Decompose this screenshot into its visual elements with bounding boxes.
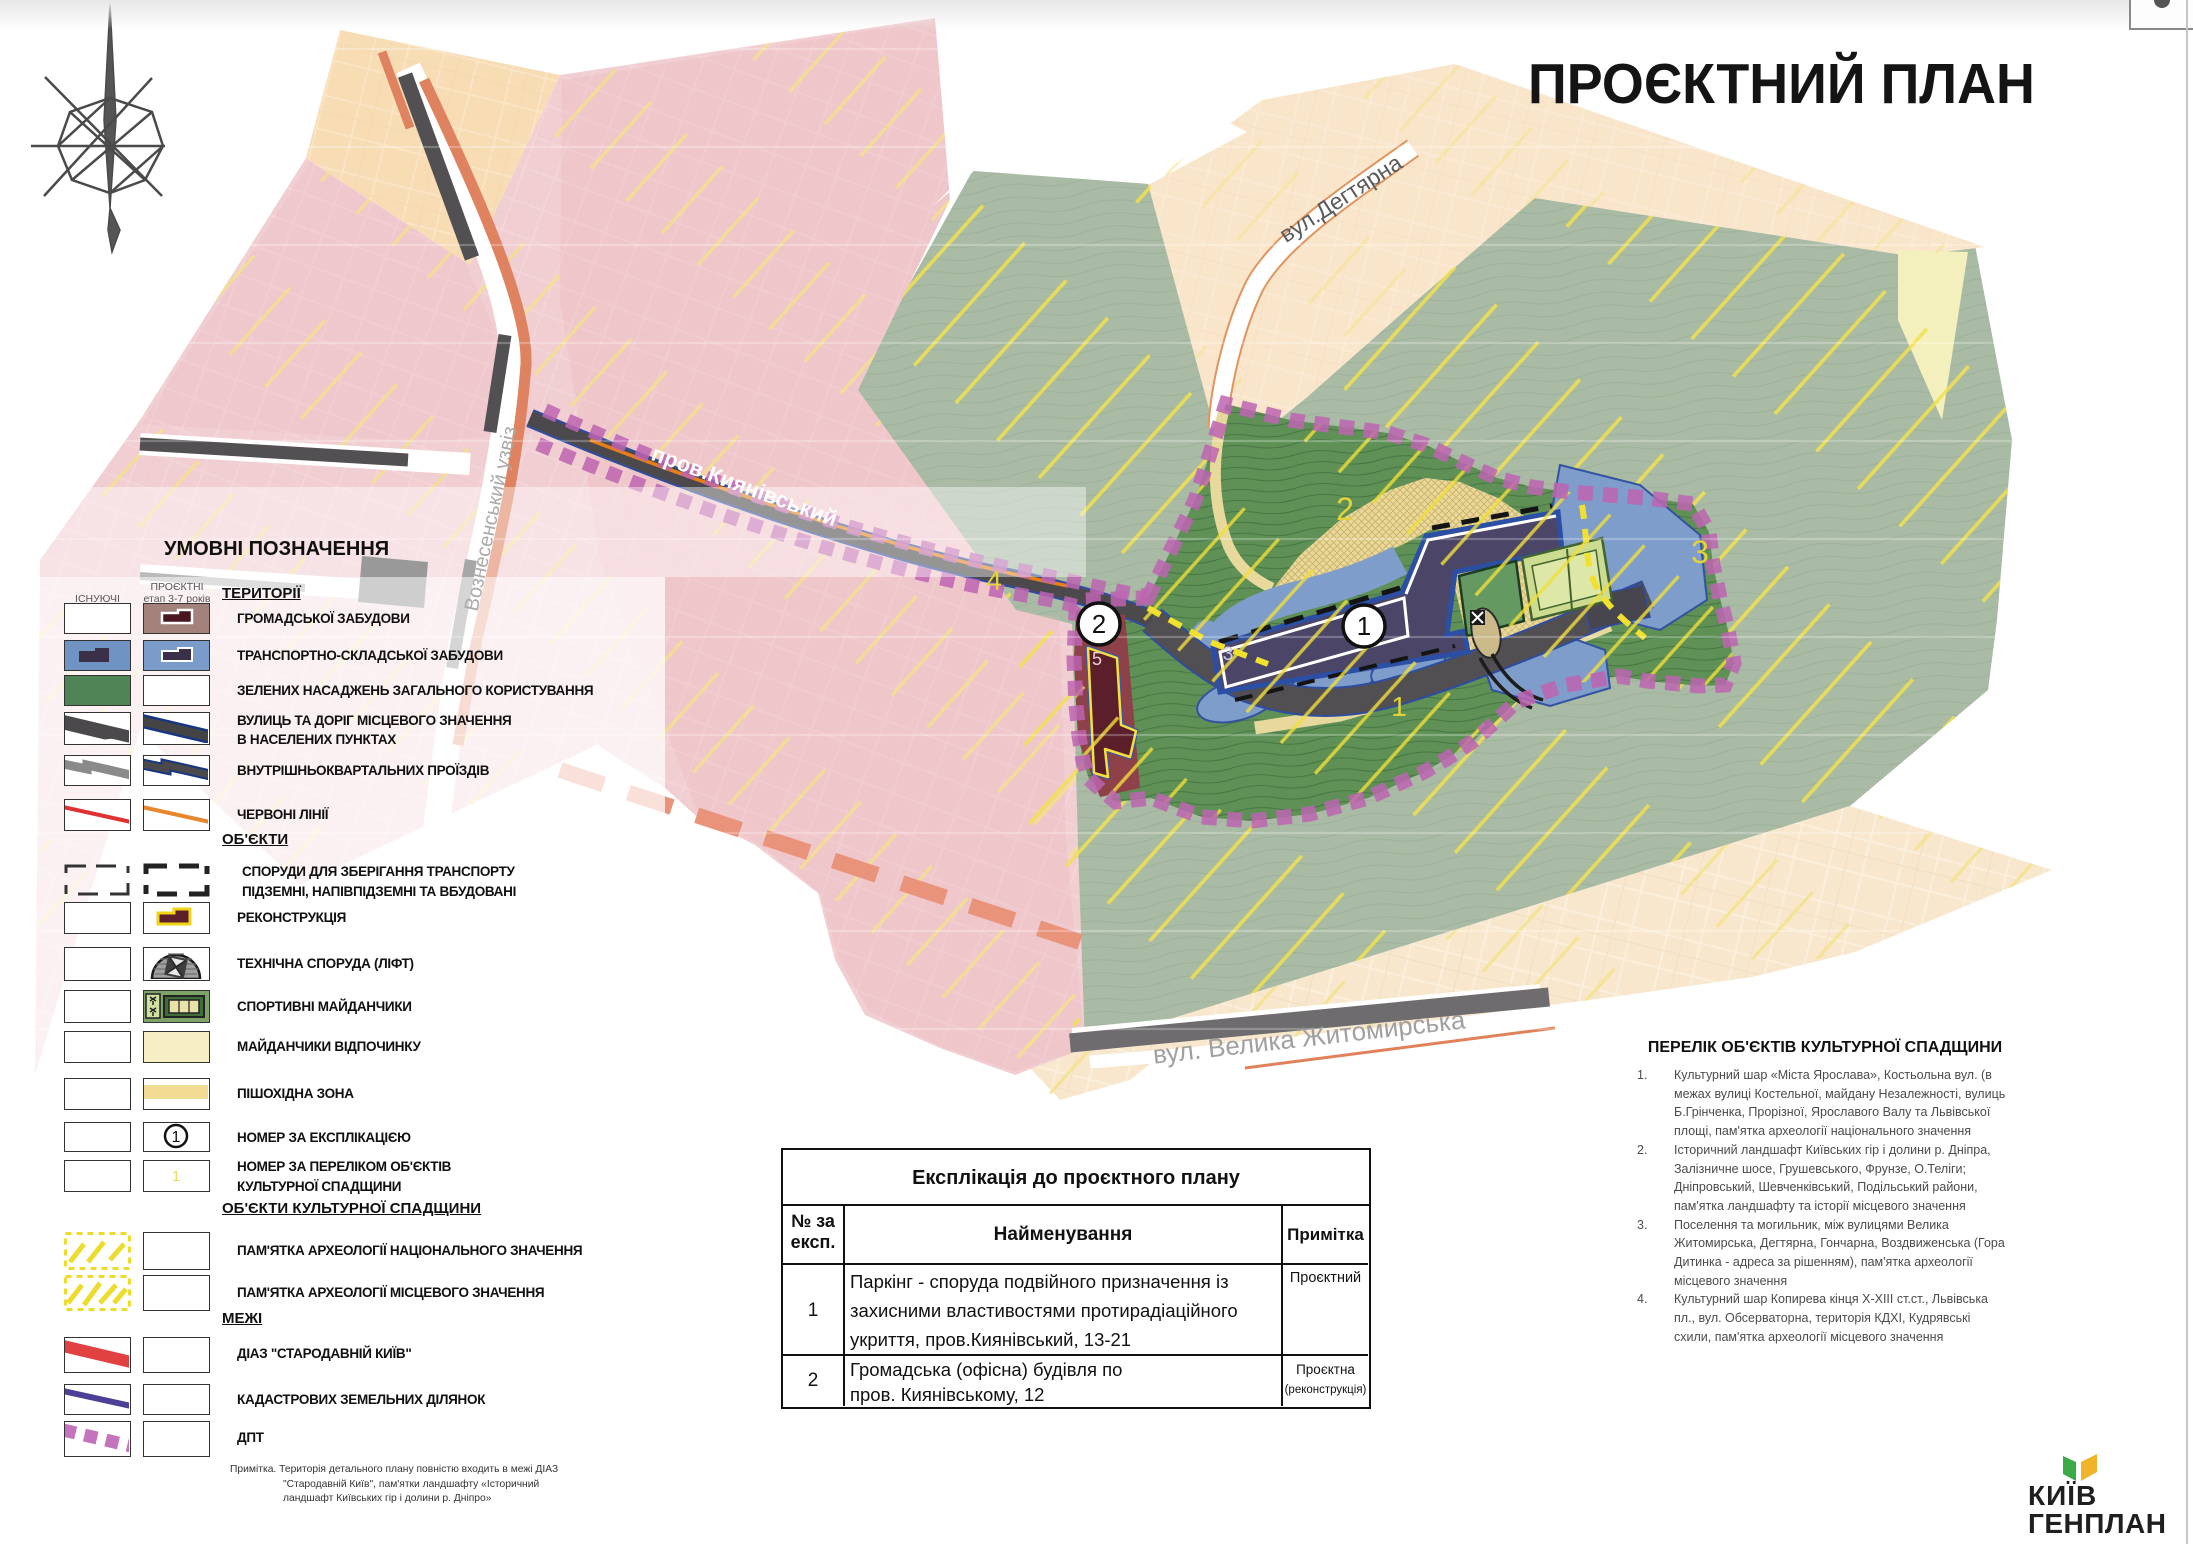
svg-text:4: 4 — [986, 565, 1002, 596]
svg-text:1: 1 — [1357, 611, 1371, 641]
svg-text:1: 1 — [1391, 691, 1407, 722]
svg-text:1: 1 — [172, 1168, 180, 1185]
svg-text:3: 3 — [1691, 534, 1709, 570]
svg-text:2: 2 — [1092, 609, 1106, 639]
svg-text:5: 5 — [1092, 649, 1102, 669]
svg-text:3: 3 — [1223, 644, 1234, 665]
svg-text:2: 2 — [1336, 491, 1354, 527]
svg-text:1: 1 — [172, 1129, 181, 1146]
